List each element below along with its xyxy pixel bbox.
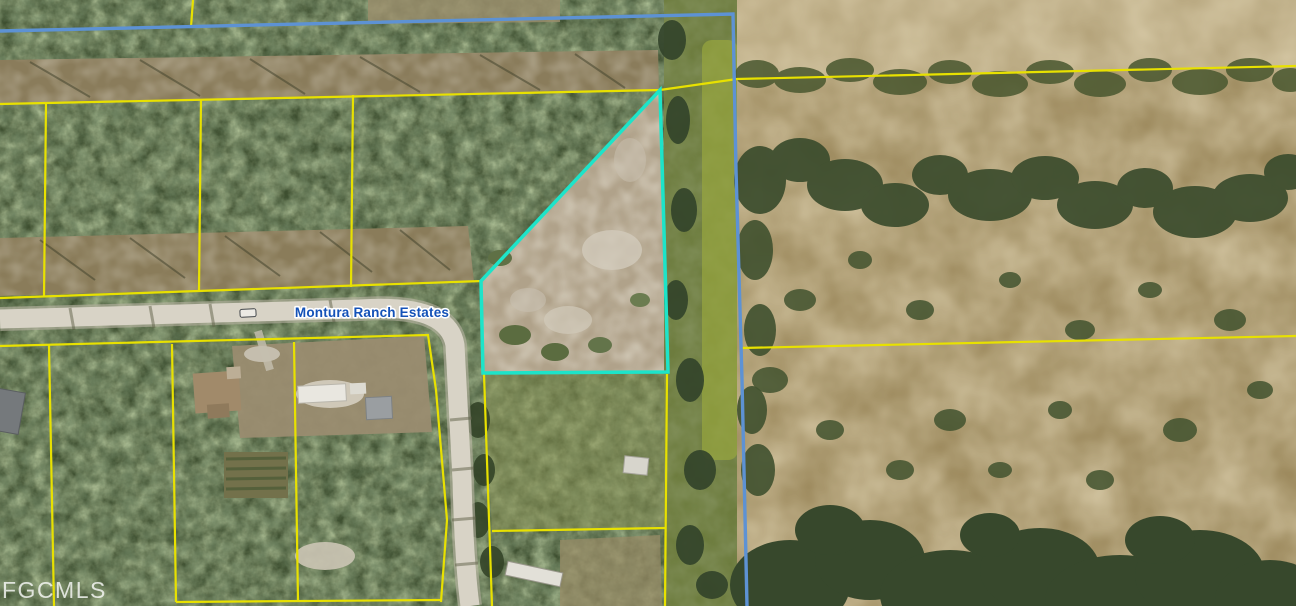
mls-aerial-map-image: Montura Ranch Estates Montura Ranch Esta… bbox=[0, 0, 1296, 606]
watermark-fgcmls: FGCMLS bbox=[2, 577, 107, 603]
car-on-road bbox=[240, 309, 256, 318]
building-white-structure bbox=[623, 456, 649, 475]
terrain-field-right bbox=[730, 0, 1296, 606]
building-white-roof bbox=[298, 384, 347, 403]
building-white-small bbox=[350, 383, 367, 395]
terrain-canal-strip bbox=[658, 0, 744, 606]
terrain-bottom-middle bbox=[466, 372, 666, 606]
building-gray-shed bbox=[365, 396, 392, 419]
road-name-label: Montura Ranch Estates bbox=[295, 305, 449, 320]
aerial-photo: Montura Ranch Estates Montura Ranch Esta… bbox=[0, 0, 1296, 606]
